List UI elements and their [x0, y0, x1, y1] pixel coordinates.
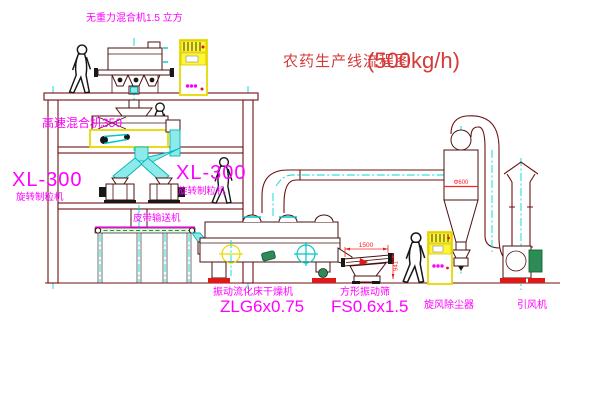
person-figure	[70, 45, 91, 93]
label-granulator-left-name: 旋转制粒机	[16, 191, 64, 203]
control-cabinet-upper	[180, 40, 207, 95]
label-gravity-mixer: 无重力混合机1.5 立方	[86, 11, 183, 24]
label-dryer-model: ZLG6x0.75	[220, 297, 304, 316]
control-cabinet-lower	[428, 232, 452, 284]
cyclone-diameter-dim: Φ600	[454, 180, 469, 186]
drawing-title: 农药生产线流程图 (500kg/h)	[283, 48, 460, 73]
label-fan: 引风机	[517, 298, 547, 311]
person-figure	[403, 233, 424, 283]
drawing-canvas: Φ600 1500	[0, 0, 600, 403]
label-cyclone: 旋风除尘器	[424, 298, 474, 311]
label-sieve-model: FS0.6x1.5	[331, 297, 409, 316]
sieve-width-dim: 1500	[359, 242, 374, 249]
belt-conveyor	[95, 227, 211, 283]
gravity-free-mixer	[94, 38, 174, 100]
label-granulator-left-model: XL-300	[12, 169, 83, 191]
label-belt-conveyor: 皮带输送机	[133, 212, 181, 224]
title-capacity: (500kg/h)	[367, 48, 460, 73]
granulator-left	[99, 178, 136, 203]
fluid-bed-dryer	[198, 215, 352, 283]
vibrating-sieve: 1500 941	[341, 242, 400, 284]
label-granulator-right-model: XL-300	[176, 162, 247, 184]
sieve-height-dim: 941	[394, 260, 400, 271]
label-granulator-right-name: 旋转制粒机	[178, 185, 226, 197]
process-flow-drawing: Φ600 1500	[0, 0, 600, 403]
label-high-speed-mixer: 高速混合机350	[42, 115, 122, 130]
induced-draft-fan	[500, 246, 545, 283]
